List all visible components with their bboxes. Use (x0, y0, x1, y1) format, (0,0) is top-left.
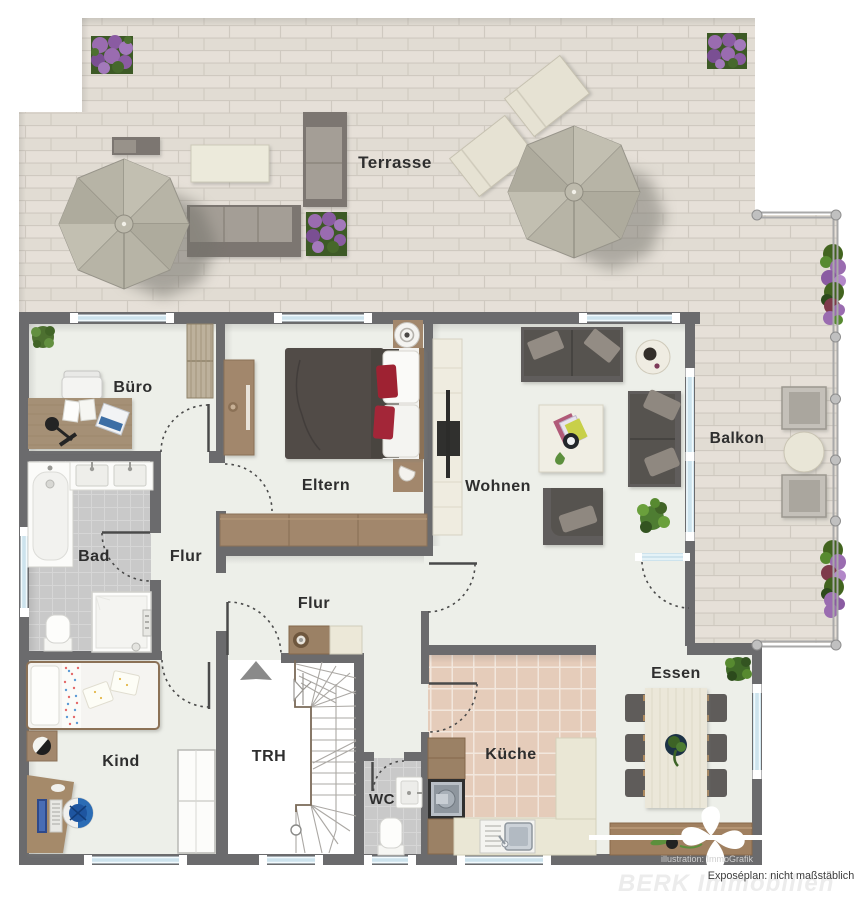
svg-text:Kind: Kind (102, 753, 140, 770)
svg-text:Balkon: Balkon (710, 430, 765, 447)
svg-text:Essen: Essen (651, 665, 701, 682)
svg-text:Bad: Bad (78, 548, 110, 565)
svg-text:Eltern: Eltern (302, 477, 350, 494)
svg-text:Exposéplan: nicht maßstäblich: Exposéplan: nicht maßstäblich (708, 870, 854, 882)
svg-text:Terrasse: Terrasse (358, 153, 432, 172)
svg-text:Büro: Büro (113, 379, 152, 396)
svg-text:Küche: Küche (485, 746, 536, 763)
svg-text:illustration: ImmoGrafik: illustration: ImmoGrafik (661, 854, 754, 864)
svg-text:TRH: TRH (252, 748, 286, 765)
svg-text:Flur: Flur (170, 548, 202, 565)
svg-text:Wohnen: Wohnen (465, 478, 531, 495)
svg-text:WC: WC (369, 791, 395, 808)
svg-text:Flur: Flur (298, 595, 330, 612)
